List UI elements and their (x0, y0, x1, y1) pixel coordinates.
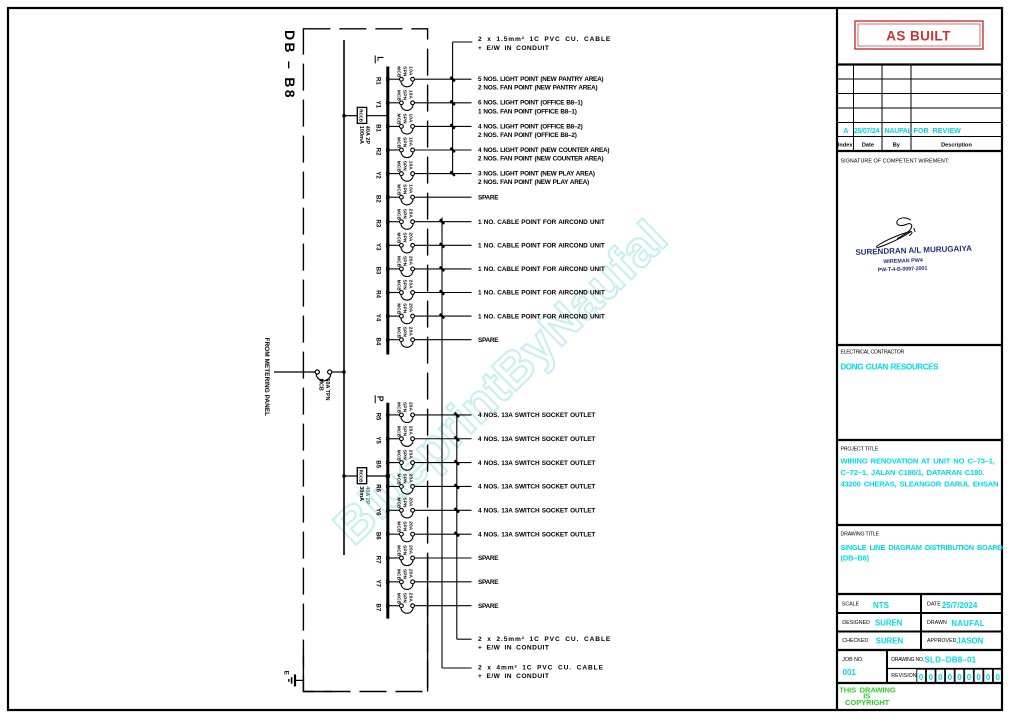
svg-text:(DB–B8): (DB–B8) (841, 553, 870, 562)
svg-text:SPN: SPN (402, 593, 408, 604)
svg-text:SCALE: SCALE (842, 601, 860, 607)
svg-text:PROJECT TITLE: PROJECT TITLE (841, 447, 879, 453)
svg-text:SPN: SPN (402, 450, 408, 461)
svg-text:20A: 20A (408, 303, 414, 313)
svg-text:25/07/24: 25/07/24 (854, 128, 880, 135)
svg-text:L: L (376, 56, 386, 61)
svg-text:DONG GUAN RESOURCES: DONG GUAN RESOURCES (841, 362, 940, 371)
svg-text:Y2: Y2 (374, 171, 380, 179)
svg-text:20A: 20A (408, 402, 414, 412)
svg-text:SPN: SPN (402, 161, 408, 172)
svg-text:2 x 2.5mm² 1C PVC CU. CABLE: 2 x 2.5mm² 1C PVC CU. CABLE (478, 636, 611, 643)
svg-text:MCB: MCB (396, 426, 402, 438)
svg-text:SPN: SPN (402, 402, 408, 413)
svg-text:2 x 4mm² 1C PVC CU. CABLE: 2 x 4mm² 1C PVC CU. CABLE (478, 664, 604, 671)
svg-text:0: 0 (938, 673, 943, 682)
svg-text:FOR REVIEW: FOR REVIEW (914, 126, 962, 135)
svg-text:SPARE: SPARE (478, 337, 499, 344)
svg-text:SINGLE LINE DIAGRAM DISTRIBUTI: SINGLE LINE DIAGRAM DISTRIBUTION BOARD (841, 543, 1004, 552)
svg-text:SPN: SPN (402, 184, 408, 195)
svg-text:DATE: DATE (927, 602, 941, 608)
svg-text:R6: R6 (374, 484, 380, 492)
svg-text:MCB: MCB (396, 114, 402, 126)
svg-text:SPARE: SPARE (478, 194, 499, 201)
svg-text:0: 0 (957, 673, 962, 682)
svg-text:NTS: NTS (873, 601, 890, 610)
svg-text:NAUFAL: NAUFAL (951, 619, 984, 628)
svg-text:2 NOS. FAN POINT (NEW PANTRY A: 2 NOS. FAN POINT (NEW PANTRY AREA) (478, 85, 598, 92)
svg-text:10A: 10A (408, 90, 414, 100)
svg-text:Index: Index (838, 143, 853, 149)
svg-text:SPARE: SPARE (478, 555, 499, 562)
svg-text:B7: B7 (374, 604, 380, 612)
svg-text:SPN: SPN (402, 545, 408, 556)
svg-text:20A: 20A (408, 232, 414, 242)
svg-text:SPN: SPN (402, 137, 408, 148)
svg-text:MCB: MCB (396, 327, 402, 339)
svg-text:SPN: SPN (402, 114, 408, 125)
svg-text:B5: B5 (374, 460, 380, 468)
svg-text:A: A (843, 126, 848, 135)
svg-text:3 NOS. LIGHT POINT (NEW PLAY A: 3 NOS. LIGHT POINT (NEW PLAY AREA) (478, 171, 595, 178)
svg-text:R4: R4 (374, 290, 380, 298)
svg-text:40A 2P: 40A 2P (364, 486, 370, 505)
svg-text:20A: 20A (408, 327, 414, 337)
svg-text:20A: 20A (408, 569, 414, 579)
svg-text:SPN: SPN (402, 90, 408, 101)
svg-text:10A: 10A (408, 114, 414, 124)
svg-text:SPN: SPN (402, 497, 408, 508)
svg-text:JASON: JASON (956, 636, 983, 645)
svg-text:SUREN: SUREN (875, 619, 903, 628)
svg-text:B1: B1 (374, 124, 380, 132)
svg-text:MCB: MCB (396, 303, 402, 315)
svg-text:1 NO. CABLE POINT FOR AIRCOND: 1 NO. CABLE POINT FOR AIRCOND UNIT (478, 290, 605, 297)
svg-text:R1: R1 (374, 77, 380, 85)
svg-text:MCB: MCB (396, 137, 402, 149)
svg-text:0: 0 (928, 673, 933, 682)
svg-text:MCB: MCB (396, 474, 402, 486)
svg-text:+ E/W IN CONDUIT: + E/W IN CONDUIT (478, 45, 549, 52)
svg-text:SPN: SPN (402, 232, 408, 243)
svg-text:4 NOS. LIGHT POINT (NEW COUNTE: 4 NOS. LIGHT POINT (NEW COUNTER AREA) (478, 147, 609, 154)
svg-text:Date: Date (862, 143, 874, 149)
svg-text:MCB: MCB (396, 280, 402, 292)
svg-text:4 NOS. 13A SWITCH SOCKET OUTLE: 4 NOS. 13A SWITCH SOCKET OUTLET (478, 436, 595, 443)
svg-text:4 NOS. 13A SWITCH SOCKET OUTLE: 4 NOS. 13A SWITCH SOCKET OUTLET (478, 508, 595, 515)
svg-text:SPARE: SPARE (478, 579, 499, 586)
svg-text:SPN: SPN (402, 474, 408, 485)
svg-text:4 NOS. LIGHT POINT (OFFICE B8–: 4 NOS. LIGHT POINT (OFFICE B8–2) (478, 123, 583, 130)
svg-text:MCB: MCB (396, 256, 402, 268)
svg-text:B4: B4 (374, 338, 380, 346)
svg-text:0: 0 (967, 673, 972, 682)
svg-text:MCB: MCB (396, 545, 402, 557)
svg-text:20A: 20A (408, 545, 414, 555)
svg-text:DRAWN: DRAWN (927, 620, 947, 626)
svg-text:By: By (893, 143, 901, 149)
svg-text:SLD–DB8–01: SLD–DB8–01 (925, 656, 977, 665)
svg-text:0: 0 (976, 673, 981, 682)
svg-text:CHECKED: CHECKED (842, 638, 868, 644)
svg-text:B6: B6 (374, 532, 380, 540)
svg-text:4 NOS. 13A SWITCH SOCKET OUTLE: 4 NOS. 13A SWITCH SOCKET OUTLET (478, 531, 595, 538)
svg-text:P: P (376, 396, 386, 402)
svg-text:MCB: MCB (396, 184, 402, 196)
svg-text:10A: 10A (408, 137, 414, 147)
svg-text:20A: 20A (408, 209, 414, 219)
svg-text:SPN: SPN (402, 66, 408, 77)
svg-text:4 NOS. 13A SWITCH SOCKET OUTLE: 4 NOS. 13A SWITCH SOCKET OUTLET (478, 460, 595, 467)
svg-text:2 NOS. FAN POINT (OFFICE B8–2): 2 NOS. FAN POINT (OFFICE B8–2) (478, 132, 577, 139)
svg-text:10A: 10A (408, 161, 414, 171)
svg-text:2 x 1.5mm² 1C PVC CU. CABLE: 2 x 1.5mm² 1C PVC CU. CABLE (478, 36, 611, 43)
svg-text:60A TPN: 60A TPN (324, 379, 330, 401)
svg-text:2 NOS. FAN POINT (NEW PLAY ARE: 2 NOS. FAN POINT (NEW PLAY AREA) (478, 179, 589, 186)
svg-text:MCB: MCB (396, 209, 402, 221)
svg-text:Y3: Y3 (374, 243, 380, 251)
svg-text:MCB: MCB (396, 497, 402, 509)
svg-text:6 NOS. LIGHT POINT (OFFICE B8–: 6 NOS. LIGHT POINT (OFFICE B8–1) (478, 100, 583, 107)
svg-text:0: 0 (948, 673, 953, 682)
svg-text:B2: B2 (374, 195, 380, 203)
svg-text:001: 001 (843, 668, 857, 677)
svg-text:MCB: MCB (396, 593, 402, 605)
svg-text:25/7/2024: 25/7/2024 (942, 601, 978, 610)
svg-text:0: 0 (995, 673, 1000, 682)
svg-text:SPN: SPN (402, 521, 408, 532)
svg-text:1 NOS. FAN POINT (OFFICE B8–1): 1 NOS. FAN POINT (OFFICE B8–1) (478, 108, 577, 115)
svg-text:MCB: MCB (396, 521, 402, 533)
svg-text:1 NO. CABLE POINT FOR AIRCOND: 1 NO. CABLE POINT FOR AIRCOND UNIT (478, 219, 605, 226)
svg-text:MCB: MCB (396, 402, 402, 414)
svg-text:DRAWING TITLE: DRAWING TITLE (841, 532, 880, 538)
svg-text:20A: 20A (408, 256, 414, 266)
svg-text:Y1: Y1 (374, 101, 380, 109)
svg-text:20A: 20A (408, 426, 414, 436)
svg-text:SPN: SPN (402, 280, 408, 291)
svg-text:2 NOS. FAN POINT (NEW COUNTER: 2 NOS. FAN POINT (NEW COUNTER AREA) (478, 156, 603, 163)
svg-text:FROM METERING PANEL: FROM METERING PANEL (263, 338, 270, 417)
svg-text:B3: B3 (374, 267, 380, 275)
svg-text:MCB: MCB (396, 161, 402, 173)
svg-text:5 NOS. LIGHT POINT (NEW PANTRY: 5 NOS. LIGHT POINT (NEW PANTRY AREA) (478, 76, 603, 83)
svg-text:SIGNATURE OF COMPETENT WIREMEN: SIGNATURE OF COMPETENT WIREMENT: (841, 159, 950, 165)
svg-text:4 NOS. 13A SWITCH SOCKET OUTLE: 4 NOS. 13A SWITCH SOCKET OUTLET (478, 412, 595, 419)
svg-text:MCB: MCB (396, 232, 402, 244)
svg-text:0: 0 (986, 673, 991, 682)
svg-text:1 NO. CABLE POINT FOR AIRCOND: 1 NO. CABLE POINT FOR AIRCOND UNIT (478, 243, 605, 250)
svg-text:APPROVED: APPROVED (927, 638, 957, 644)
svg-text:Description: Description (941, 143, 972, 149)
svg-text:+ E/W IN CONDUIT: + E/W IN CONDUIT (478, 644, 549, 651)
svg-text:Y5: Y5 (374, 437, 380, 445)
svg-text:R5: R5 (374, 413, 380, 421)
svg-text:20A: 20A (408, 521, 414, 531)
svg-text:4 NOS. 13A SWITCH SOCKET OUTLE: 4 NOS. 13A SWITCH SOCKET OUTLET (478, 484, 595, 491)
svg-text:REVISION: REVISION (891, 673, 916, 679)
svg-text:20A: 20A (408, 474, 414, 484)
svg-text:1 NO. CABLE POINT FOR AIRCOND: 1 NO. CABLE POINT FOR AIRCOND UNIT (478, 266, 605, 273)
svg-text:RCCB: RCCB (359, 109, 364, 122)
svg-text:MCB: MCB (317, 379, 323, 391)
svg-text:40A 2P: 40A 2P (364, 126, 370, 145)
svg-text:MCB: MCB (396, 66, 402, 78)
svg-text:SPN: SPN (402, 327, 408, 338)
svg-text:MCB: MCB (396, 450, 402, 462)
svg-text:RCCB: RCCB (359, 470, 364, 483)
svg-text:Y6: Y6 (374, 508, 380, 516)
svg-text:WIRING RENOVATION AT UNIT NO C: WIRING RENOVATION AT UNIT NO C–73–1, (841, 456, 995, 465)
svg-text:100mA: 100mA (358, 126, 364, 144)
svg-text:E: E (283, 671, 290, 675)
svg-text:DESIGNED: DESIGNED (842, 620, 870, 626)
svg-text:20A: 20A (408, 497, 414, 507)
svg-text:JOB NO.: JOB NO. (842, 657, 863, 663)
svg-text:20A: 20A (408, 450, 414, 460)
svg-text:SUREN: SUREN (876, 636, 904, 645)
svg-text:ELECTRICAL CONTRACTOR: ELECTRICAL CONTRACTOR (841, 350, 905, 356)
svg-text:MCB: MCB (396, 569, 402, 581)
svg-text:SPN: SPN (402, 256, 408, 267)
svg-text:R3: R3 (374, 220, 380, 228)
svg-text:10A: 10A (408, 184, 414, 194)
svg-text:SPN: SPN (402, 209, 408, 220)
svg-text:SPN: SPN (402, 303, 408, 314)
svg-text:Y7: Y7 (374, 580, 380, 588)
svg-text:20A: 20A (408, 280, 414, 290)
svg-text:NAUFAL: NAUFAL (885, 128, 913, 135)
svg-text:SPN: SPN (402, 569, 408, 580)
svg-text:Y4: Y4 (374, 314, 380, 322)
svg-text:R7: R7 (374, 556, 380, 564)
svg-text:43200 CHERAS, SLEANGOR DARUL E: 43200 CHERAS, SLEANGOR DARUL EHSAN (841, 479, 999, 488)
svg-text:SPARE: SPARE (478, 603, 499, 610)
svg-text:DRAWING NO.: DRAWING NO. (891, 657, 924, 663)
svg-text:10A: 10A (408, 66, 414, 76)
svg-text:C–72–1, JALAN C180/1, DATARAN: C–72–1, JALAN C180/1, DATARAN C180. (841, 468, 985, 477)
svg-text:30mA: 30mA (358, 486, 364, 501)
svg-text:20A: 20A (408, 593, 414, 603)
svg-text:0: 0 (919, 673, 924, 682)
svg-text:SPN: SPN (402, 426, 408, 437)
svg-text:MCB: MCB (396, 90, 402, 102)
svg-text:R2: R2 (374, 148, 380, 156)
svg-text:+ E/W IN CONDUIT: + E/W IN CONDUIT (478, 673, 549, 680)
svg-text:COPYRIGHT: COPYRIGHT (845, 698, 890, 707)
svg-text:AS BUILT: AS BUILT (886, 29, 951, 44)
svg-text:1 NO. CABLE POINT FOR AIRCOND: 1 NO. CABLE POINT FOR AIRCOND UNIT (478, 313, 605, 320)
svg-text:DB – B8: DB – B8 (282, 30, 298, 100)
